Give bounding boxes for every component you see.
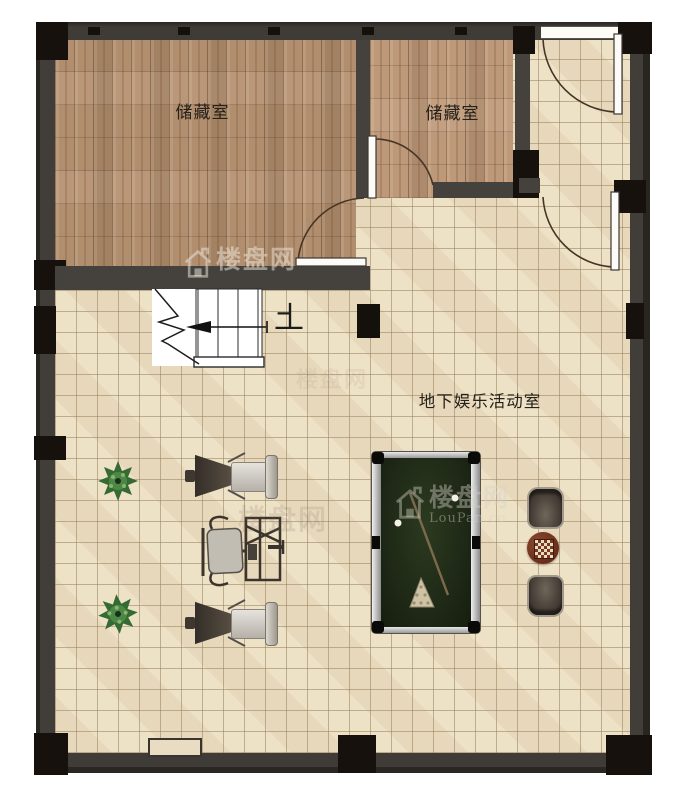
room-label-activity: 地下娱乐活动室 <box>405 388 555 412</box>
potted-plant <box>96 459 140 503</box>
door-leaf-entry-lower <box>611 192 619 270</box>
chair <box>527 575 564 617</box>
floor-plan: 上 <box>0 0 680 800</box>
door-swings <box>0 0 680 800</box>
billiard-ball <box>452 495 459 502</box>
billiard-ball <box>395 520 402 527</box>
treadmill <box>183 450 281 502</box>
door-leaf-storage-left <box>296 258 366 266</box>
door-leaf-entry-upper <box>614 34 622 114</box>
door-arc-entry-lower <box>543 197 614 267</box>
room-label-storage-right: 储藏室 <box>395 99 510 124</box>
room-label-storage-left: 储藏室 <box>145 98 260 123</box>
chess-board <box>534 539 554 559</box>
pool-table <box>372 452 480 633</box>
multi-gym-machine <box>198 514 292 588</box>
treadmill <box>183 597 281 649</box>
chess-table <box>527 532 559 564</box>
door-leaf-storage-right <box>368 136 376 198</box>
billiard-cue <box>410 493 448 595</box>
door-arc-storage-left <box>298 198 364 263</box>
gym-bench-pad <box>207 528 243 574</box>
chair <box>527 487 564 529</box>
door-arc-storage-right <box>376 139 433 185</box>
door-arc-entry-upper <box>543 39 616 112</box>
